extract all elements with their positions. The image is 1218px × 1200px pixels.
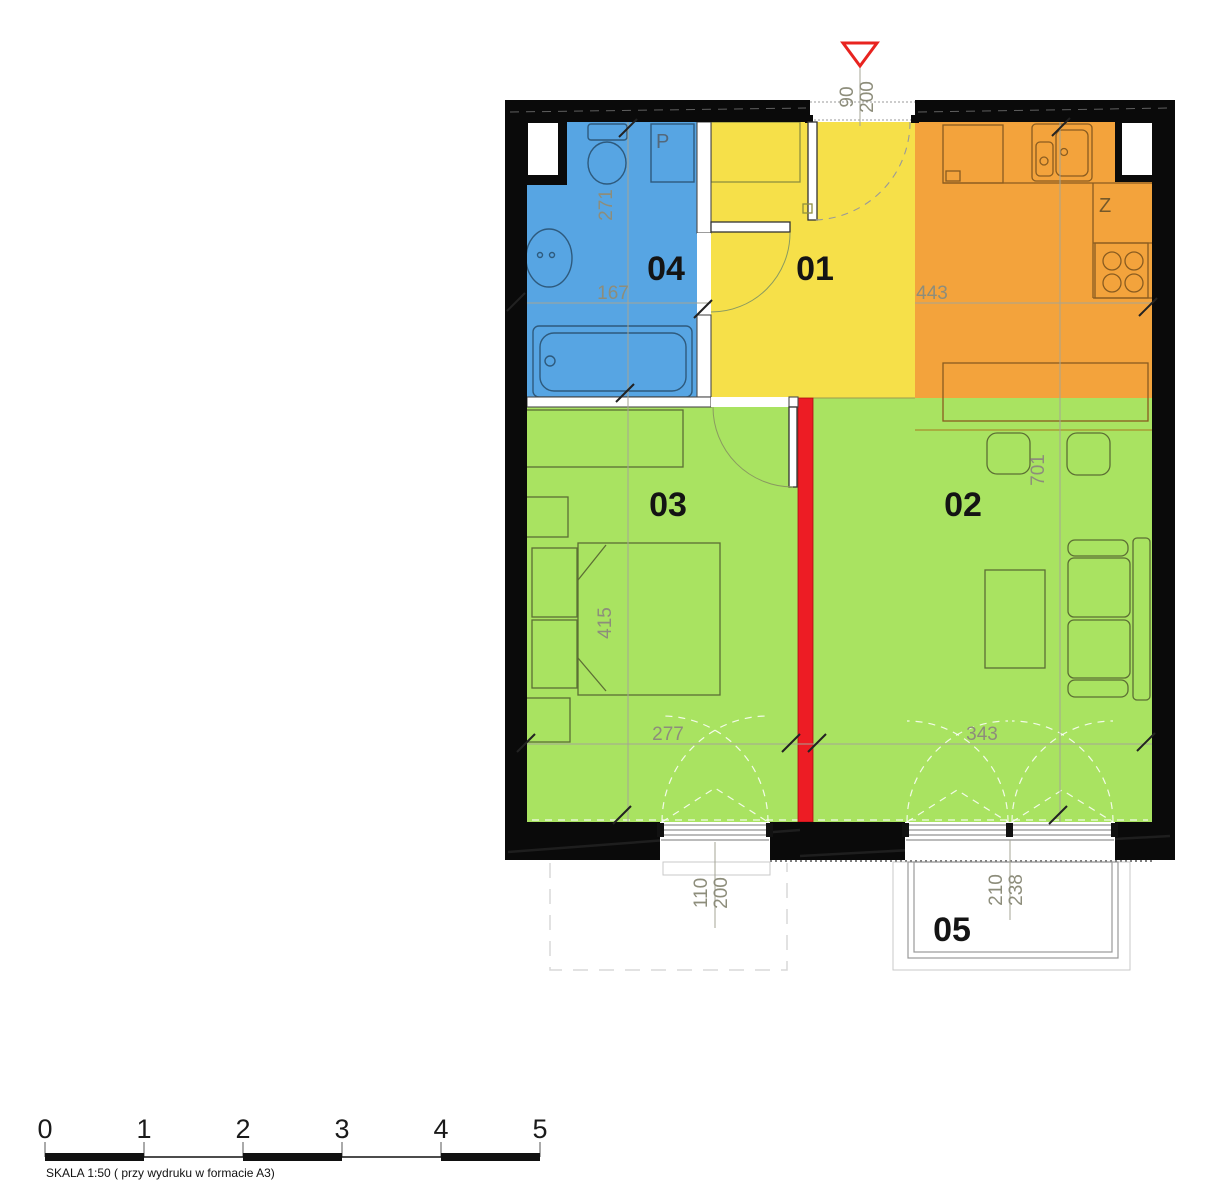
scale-bar: 0 1 2 3 4 5 SKALA 1:50 ( przy wydruku w … xyxy=(37,1114,547,1180)
window-jamb-icon xyxy=(1006,823,1013,837)
scale-bar-segment xyxy=(45,1153,144,1161)
window-jamb-icon xyxy=(902,823,909,837)
dim-bathroom-width: 167 xyxy=(597,283,629,304)
scale-tick-label: 0 xyxy=(37,1114,52,1144)
door-jamb-icon xyxy=(911,115,919,123)
floor-plan-page: 90 200 210 238 05 110 200 xyxy=(0,0,1218,1200)
room-label-balcony: 05 xyxy=(933,911,971,949)
entrance-arrow-icon xyxy=(843,43,877,66)
scale-tick-label: 1 xyxy=(136,1114,151,1144)
scale-caption: SKALA 1:50 ( przy wydruku w formacie A3) xyxy=(46,1166,275,1180)
bathroom-door-leaf xyxy=(711,222,790,232)
washing-machine-label: P xyxy=(656,131,669,153)
window-jamb-icon xyxy=(657,823,664,837)
bathroom-wall xyxy=(697,122,711,233)
dim-living-depth: 701 xyxy=(1028,454,1049,486)
bedroom-door-opening xyxy=(711,397,789,407)
living-window-height: 238 xyxy=(1006,874,1027,906)
terrace-dashed-outline xyxy=(550,863,787,970)
dim-living-width: 343 xyxy=(966,724,998,745)
bedroom-window-width: 110 xyxy=(691,878,712,908)
scale-bar-segment xyxy=(441,1153,540,1161)
wall-right xyxy=(1152,100,1175,860)
scale-bar-segment xyxy=(243,1153,342,1161)
wall-niche xyxy=(528,123,558,175)
kitchen-z-label: Z xyxy=(1099,195,1111,217)
scale-tick-label: 3 xyxy=(334,1114,349,1144)
room-fills xyxy=(527,122,1152,822)
entrance-door-height: 200 xyxy=(857,81,878,113)
room-label-bathroom: 04 xyxy=(647,250,685,288)
bedroom-window-height: 200 xyxy=(711,877,732,909)
living-window-width: 210 xyxy=(986,874,1007,906)
room-label-hall: 01 xyxy=(796,250,834,288)
entrance-door-width: 90 xyxy=(837,86,858,107)
wall-niche xyxy=(1122,123,1152,175)
red-partition-wall xyxy=(798,398,813,822)
window-jamb-icon xyxy=(766,823,773,837)
bathroom-wall xyxy=(697,315,711,397)
room-label-bedroom: 03 xyxy=(649,486,687,524)
terrace: 110 200 xyxy=(550,842,787,970)
scale-tick-label: 2 xyxy=(235,1114,250,1144)
floor-plan-image: 90 200 210 238 05 110 200 xyxy=(0,0,1218,1200)
bedroom-floor xyxy=(527,397,798,822)
scale-tick-label: 5 xyxy=(532,1114,547,1144)
room-label-living: 02 xyxy=(944,486,982,524)
dim-bedroom-width: 277 xyxy=(652,724,684,745)
living-floor xyxy=(813,398,1152,822)
dim-kitchen-width: 443 xyxy=(916,283,948,304)
dim-bathroom-depth: 271 xyxy=(596,189,617,221)
window-sill-outline xyxy=(663,862,770,875)
window-jamb-icon xyxy=(1111,823,1118,837)
wall-stub xyxy=(789,397,798,407)
bedroom-door-leaf xyxy=(789,407,797,487)
scale-tick-label: 4 xyxy=(433,1114,448,1144)
dim-bedroom-depth: 415 xyxy=(595,607,616,639)
